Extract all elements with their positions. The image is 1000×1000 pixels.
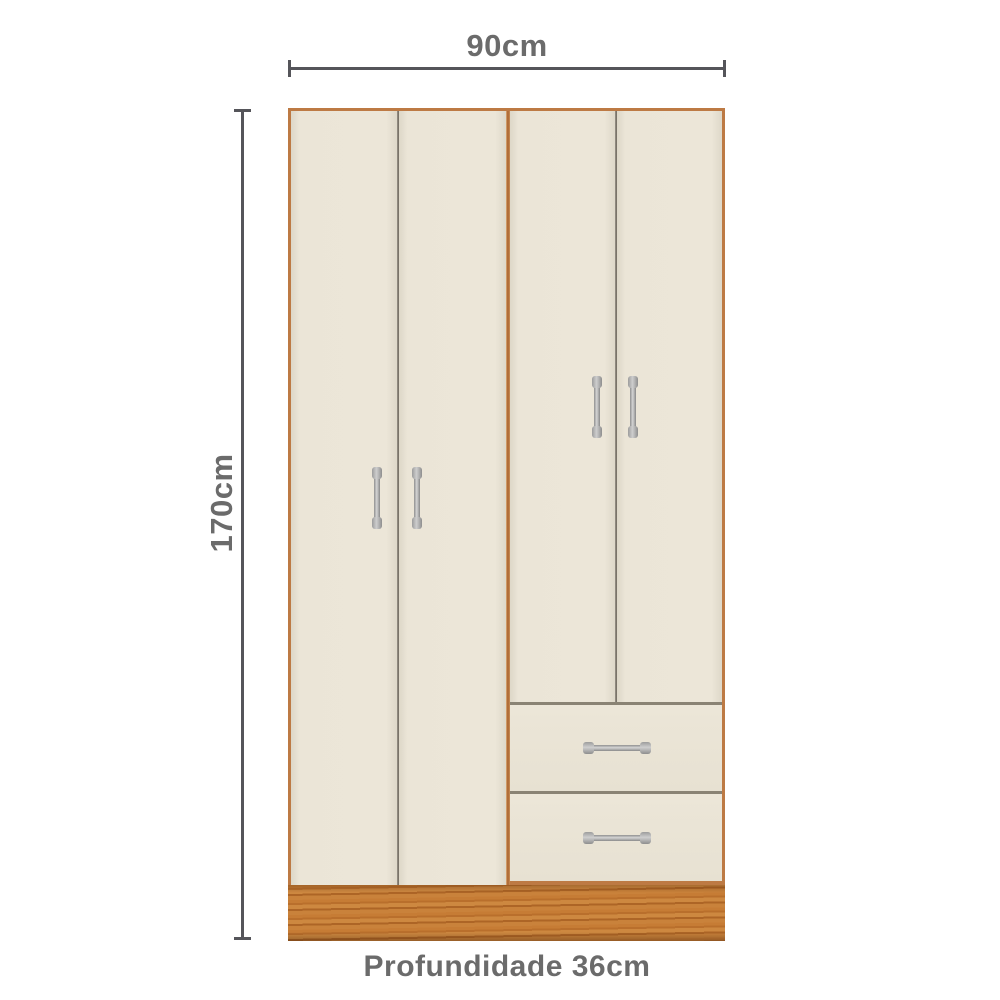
dimension-tick-icon (234, 937, 251, 940)
door-gap-line (615, 111, 617, 702)
wardrobe-door-left-1 (291, 111, 397, 885)
depth-dimension-label: Profundidade 36cm (288, 950, 726, 984)
wardrobe-door-left-2 (399, 111, 506, 885)
door-handle-icon (414, 470, 420, 526)
height-dimension-line (241, 109, 244, 940)
wood-base-plinth (288, 885, 725, 941)
wardrobe-door-right-2 (617, 111, 722, 702)
door-handle-icon (594, 379, 600, 435)
drawer-handle-icon (585, 835, 649, 841)
width-dimension-label: 90cm (288, 28, 726, 64)
wardrobe-dimension-diagram: 90cm 170cm (0, 0, 1000, 1000)
door-handle-icon (630, 379, 636, 435)
wardrobe-door-right-1 (510, 111, 615, 702)
door-gap-line (397, 111, 399, 885)
width-dimension-line (288, 67, 726, 70)
dimension-tick-icon (288, 60, 291, 77)
drawer-front-1 (510, 705, 722, 791)
door-handle-icon (374, 470, 380, 526)
drawer-handle-icon (585, 745, 649, 751)
dimension-tick-icon (234, 109, 251, 112)
drawer-front-2 (510, 794, 722, 881)
wardrobe-body (288, 108, 725, 941)
dimension-tick-icon (723, 60, 726, 77)
height-dimension-label: 170cm (204, 453, 240, 552)
